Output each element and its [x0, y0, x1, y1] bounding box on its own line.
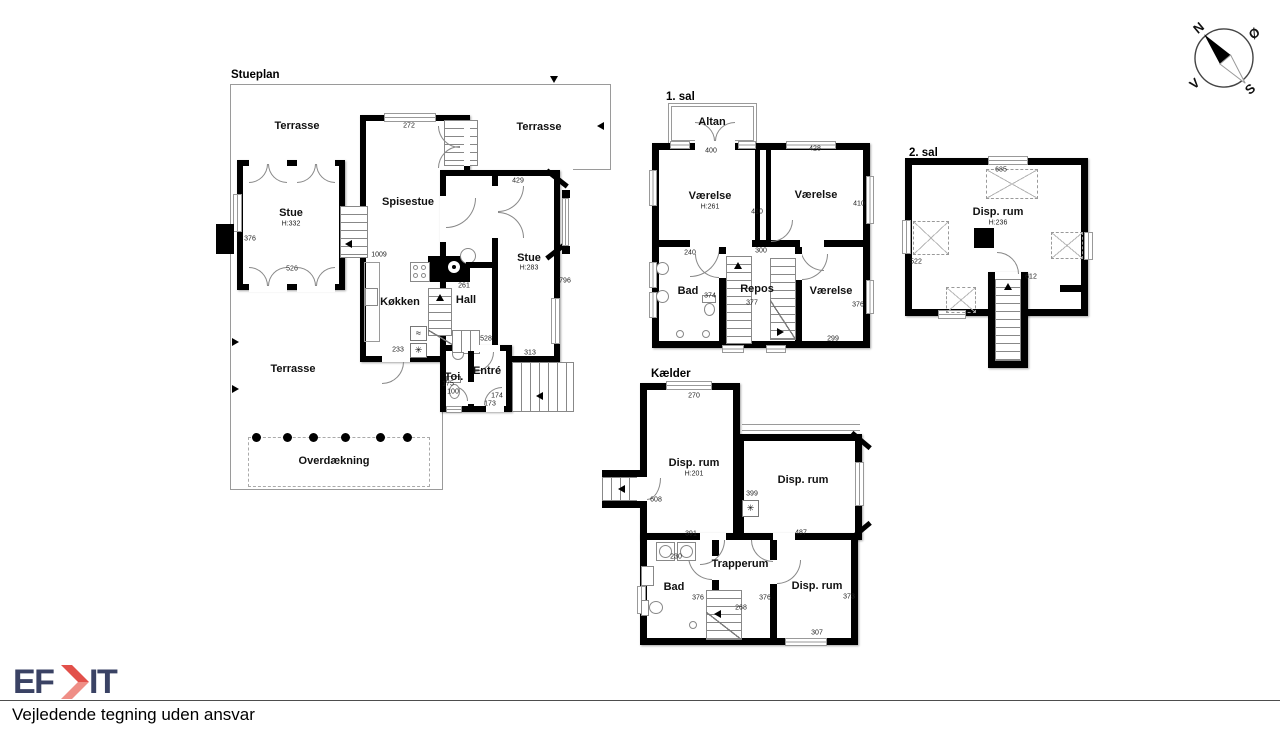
- entry-arrow-icon: [550, 76, 558, 83]
- site-boundary-line: [573, 169, 611, 170]
- dimension-label-stueplan: 528: [480, 336, 492, 343]
- dimension-label-sal1: 374: [704, 293, 716, 300]
- kitchen-sink: [365, 288, 378, 306]
- window: [785, 638, 827, 646]
- window: [988, 156, 1028, 165]
- skylight: [913, 221, 949, 255]
- room-label-sal2: H:236: [989, 220, 1008, 227]
- dimension-label-stueplan: 429: [512, 178, 524, 185]
- wall-segment: [652, 240, 870, 247]
- stairs: [995, 279, 1021, 361]
- toilet-bowl: [704, 303, 715, 316]
- entry-arrow-icon: [597, 122, 604, 130]
- dimension-label-kaelder: 270: [688, 393, 700, 400]
- room-label-sal1: Værelse: [795, 189, 838, 201]
- compass-label-south: S: [1242, 80, 1259, 97]
- hob-dot-icon: [452, 265, 456, 269]
- compass-label-west: V: [1186, 75, 1203, 92]
- wall-segment: [602, 501, 640, 508]
- door-gap: [637, 477, 647, 501]
- door-gap: [690, 240, 752, 247]
- room-label-stueplan: Stue: [517, 252, 541, 264]
- dimension-label-kaelder: 376: [759, 595, 771, 602]
- bath-sink: [641, 566, 654, 586]
- post-dot: [341, 433, 350, 442]
- dimension-label-stueplan: 796: [559, 278, 571, 285]
- skylight: [986, 169, 1038, 199]
- skylight: [1051, 232, 1083, 259]
- site-boundary-line: [230, 84, 231, 490]
- stairs: [340, 206, 368, 258]
- post-dot: [403, 433, 412, 442]
- room-label-sal1: Værelse: [689, 190, 732, 202]
- dimension-label-sal1: 410: [751, 209, 763, 216]
- compass-label-east: Ø: [1245, 24, 1262, 42]
- dimension-label-sal1: 410: [853, 201, 865, 208]
- dimension-label-stueplan: 313: [524, 350, 536, 357]
- dimension-label-sal2: 612: [1025, 274, 1037, 281]
- logo-chevron-icon: [61, 665, 89, 682]
- dimension-label-sal1: 400: [705, 148, 717, 155]
- plan-title-stueplan: Stueplan: [231, 69, 280, 81]
- dimension-label-sal2: 685: [995, 167, 1007, 174]
- dimension-label-kaelder: 391: [685, 531, 697, 538]
- window: [666, 381, 712, 390]
- freezer-icon: ✳: [742, 500, 759, 517]
- dimension-label-sal1: 428: [809, 146, 821, 153]
- dimension-label-sal1: 376: [852, 302, 864, 309]
- disclaimer-text: Vejledende tegning uden ansvar: [12, 705, 255, 725]
- room-label-stueplan: H:283: [520, 265, 539, 272]
- post-dot: [252, 433, 261, 442]
- company-logo: EF IT: [13, 662, 143, 702]
- dimension-label-kaelder: 307: [811, 630, 823, 637]
- room-label-kaelder: Disp. rum: [778, 474, 829, 486]
- room-label-sal2: Disp. rum: [973, 206, 1024, 218]
- radiator-icon: [689, 621, 697, 629]
- toilet-tank: [641, 600, 649, 616]
- stair-arrow-icon: [436, 294, 444, 301]
- dimension-label-kaelder: 487: [795, 530, 807, 537]
- dimension-label-sal1: 377: [746, 300, 758, 307]
- door-gap: [474, 345, 500, 352]
- compass-rose: N Ø S V: [1178, 10, 1270, 106]
- dimension-label-stueplan: 174: [491, 393, 503, 400]
- logo-text-left: EF: [13, 663, 54, 701]
- window: [1084, 232, 1093, 260]
- dimension-label-stueplan: 100: [447, 389, 459, 396]
- plan-title-1sal: 1. sal: [666, 91, 695, 103]
- window: [446, 406, 462, 413]
- room-label-stueplan: Overdækning: [299, 455, 370, 467]
- wall-segment: [466, 262, 492, 268]
- room-label-kaelder: H:201: [685, 471, 704, 478]
- room-label-sal1: Værelse: [810, 285, 853, 297]
- window: [233, 194, 242, 232]
- dimension-label-stueplan: 175: [442, 381, 454, 388]
- dimension-label-sal1: 299: [827, 336, 839, 343]
- room-label-kaelder: Trapperum: [712, 558, 769, 570]
- room-label-sal1: Altan: [698, 116, 726, 128]
- door-gap: [800, 240, 824, 247]
- door-arc: [382, 362, 404, 384]
- plan-title-kaelder: Kælder: [651, 368, 691, 380]
- basin-icon: [656, 262, 669, 275]
- site-boundary-line: [230, 84, 611, 85]
- door-gap: [719, 254, 726, 278]
- dimension-label-kaelder: 608: [650, 497, 662, 504]
- dimension-label-stueplan: 1009: [371, 252, 387, 259]
- window: [902, 220, 911, 254]
- window: [649, 170, 657, 206]
- room-label-kaelder: Disp. rum: [669, 457, 720, 469]
- room-label-stueplan: Terrasse: [516, 121, 561, 133]
- dimension-label-kaelder: 373: [843, 594, 855, 601]
- room-label-stueplan: H:332: [282, 221, 301, 228]
- door-gap: [773, 533, 795, 540]
- stair-arrow-icon: [734, 262, 742, 269]
- stair-arrow-icon: [777, 328, 784, 336]
- stair-winder-line: [706, 612, 742, 640]
- window: [562, 198, 569, 246]
- window: [866, 280, 874, 314]
- door-gap: [795, 254, 802, 280]
- site-boundary-line: [230, 489, 443, 490]
- wall-segment: [755, 143, 760, 245]
- room-label-stueplan: Terrasse: [274, 120, 319, 132]
- skylight: [946, 287, 976, 313]
- entry-arrow-icon: [232, 338, 239, 346]
- room-label-kaelder: Bad: [664, 581, 685, 593]
- chimney: [974, 228, 994, 248]
- window: [738, 141, 756, 149]
- door-gap: [770, 560, 777, 584]
- room-label-sal1: H:261: [701, 204, 720, 211]
- dimension-label-kaelder: 399: [746, 491, 758, 498]
- basin-icon: [656, 290, 669, 303]
- burner-icon: [421, 273, 426, 278]
- dimension-label-sal1: 240: [684, 250, 696, 257]
- stairs: [512, 362, 574, 412]
- entry-arrow-icon: [232, 385, 239, 393]
- room-label-kaelder: Disp. rum: [792, 580, 843, 592]
- window: [551, 298, 560, 344]
- window: [384, 113, 436, 122]
- room-label-sal1: Repos: [740, 283, 774, 295]
- room-label-stueplan: Køkken: [380, 296, 420, 308]
- burner-icon: [413, 273, 418, 278]
- floorplan-canvas: Stueplan 1. sal 2. sal Kælder: [0, 0, 1280, 734]
- room-label-stueplan: Terrasse: [270, 363, 315, 375]
- radiator-icon: [676, 330, 684, 338]
- dimension-label-stueplan: 376: [244, 236, 256, 243]
- dimension-label-stueplan: 261: [458, 283, 470, 290]
- stair-arrow-icon: [536, 392, 543, 400]
- post-dot: [283, 433, 292, 442]
- room-label-stueplan: Hall: [456, 294, 476, 306]
- cooler-icon: ≈: [410, 326, 427, 341]
- toilet-bowl: [649, 601, 663, 614]
- compass-label-north: N: [1190, 19, 1207, 37]
- room-label-stueplan: Stue: [279, 207, 303, 219]
- post-dot: [309, 433, 318, 442]
- dimension-label-stueplan: 526: [286, 266, 298, 273]
- room-label-stueplan: Entré: [473, 365, 501, 377]
- window: [855, 462, 864, 506]
- burner-icon: [421, 265, 426, 270]
- stair-arrow-icon: [1004, 283, 1012, 290]
- door-gap: [468, 382, 474, 404]
- window: [866, 176, 874, 224]
- dimension-label-stueplan: 233: [392, 347, 404, 354]
- plan-title-2sal: 2. sal: [909, 147, 938, 159]
- stair-arrow-icon: [345, 240, 352, 248]
- wall-segment: [1060, 285, 1088, 292]
- dimension-label-stueplan: 272: [403, 123, 415, 130]
- window: [670, 141, 690, 149]
- logo-chevron-icon: [61, 682, 89, 699]
- burner-icon: [413, 265, 418, 270]
- post-dot: [376, 433, 385, 442]
- lightwell-line: [742, 424, 860, 425]
- door-gap: [464, 126, 470, 166]
- footer-divider: [0, 700, 1280, 701]
- door-gap: [700, 533, 726, 540]
- site-boundary-line: [610, 84, 611, 170]
- dimension-label-stueplan: 173: [484, 401, 496, 408]
- lightwell-line: [742, 430, 860, 431]
- stair-arrow-icon: [618, 485, 625, 493]
- chimney: [216, 224, 234, 254]
- window: [722, 345, 744, 353]
- room-label-stueplan: Spisestue: [382, 196, 434, 208]
- window: [766, 345, 786, 353]
- wall-segment: [602, 470, 640, 477]
- dimension-label-kaelder: 268: [735, 605, 747, 612]
- room-kaelder-disp2: [737, 434, 862, 540]
- radiator-icon: [702, 330, 710, 338]
- dimension-label-sal2: 522: [910, 259, 922, 266]
- bay-wall-segment: [562, 190, 570, 198]
- bay-wall-segment: [562, 246, 570, 254]
- dimension-label-kaelder: 376: [692, 595, 704, 602]
- freezer-icon: ✳: [410, 343, 427, 358]
- dimension-label-sal1: 300: [755, 248, 767, 255]
- dimension-label-kaelder: 230: [670, 554, 682, 561]
- stair-arrow-icon: [714, 610, 721, 618]
- logo-text-right: IT: [89, 663, 118, 701]
- room-label-sal1: Bad: [678, 285, 699, 297]
